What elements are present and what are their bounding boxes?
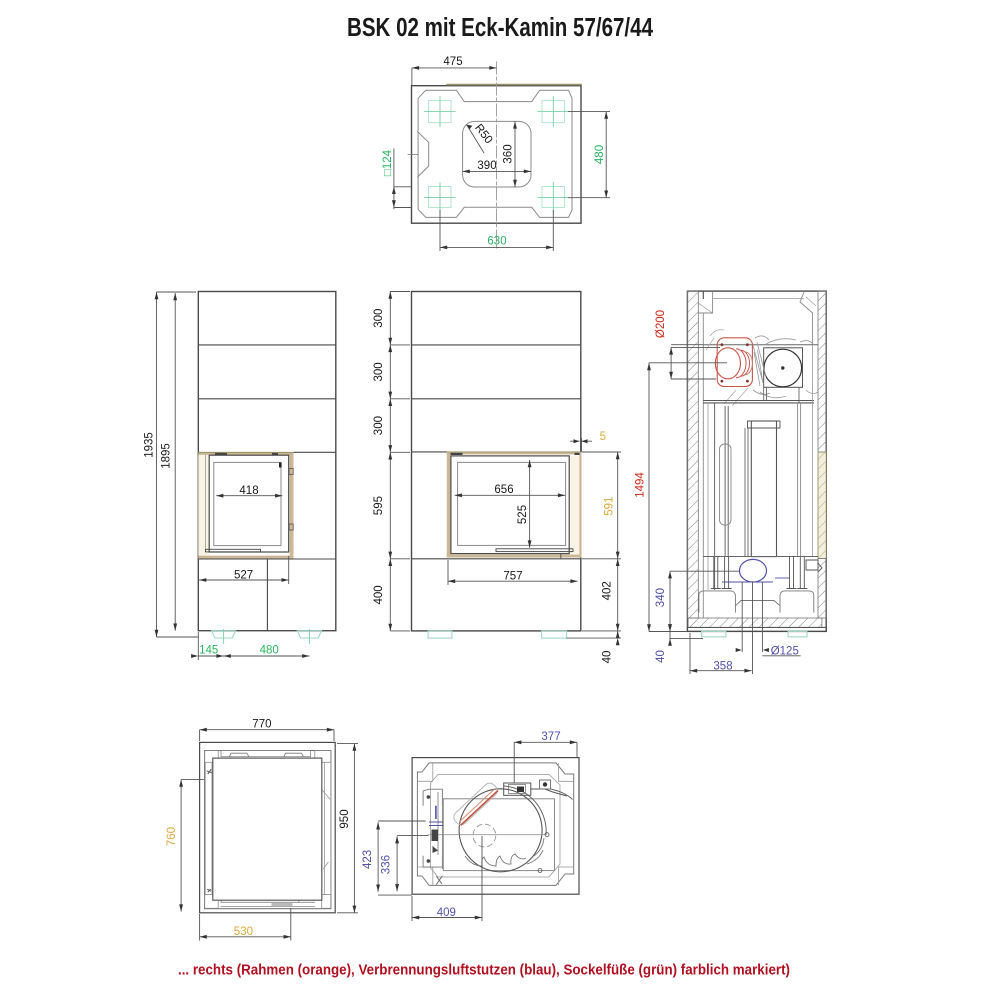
svg-text:527: 527 — [234, 570, 253, 582]
svg-text:R50: R50 — [472, 122, 494, 146]
svg-text:336: 336 — [381, 855, 393, 874]
svg-text:475: 475 — [443, 56, 462, 68]
svg-text:340: 340 — [655, 588, 667, 607]
svg-text:770: 770 — [252, 719, 271, 731]
svg-text:1935: 1935 — [144, 432, 156, 458]
svg-text:358: 358 — [713, 660, 732, 672]
svg-text:591: 591 — [603, 497, 615, 516]
svg-text:1494: 1494 — [635, 472, 647, 498]
svg-text:... rechts (Rahmen (orange), V: ... rechts (Rahmen (orange), Verbrennung… — [178, 962, 790, 979]
svg-text:5: 5 — [600, 431, 606, 443]
svg-text:40: 40 — [655, 650, 667, 663]
svg-text:409: 409 — [437, 907, 456, 919]
svg-text:300: 300 — [373, 309, 385, 328]
svg-text:400: 400 — [373, 585, 385, 604]
svg-text:□124: □124 — [382, 149, 394, 176]
svg-text:390: 390 — [477, 160, 496, 172]
svg-text:418: 418 — [239, 485, 258, 497]
svg-text:760: 760 — [166, 827, 178, 846]
svg-text:300: 300 — [373, 362, 385, 381]
svg-text:377: 377 — [541, 731, 560, 743]
svg-text:1895: 1895 — [161, 443, 173, 469]
svg-text:757: 757 — [503, 570, 522, 582]
svg-text:656: 656 — [494, 484, 513, 496]
svg-text:480: 480 — [260, 644, 279, 656]
svg-text:360: 360 — [503, 144, 515, 163]
svg-text:630: 630 — [487, 235, 506, 247]
svg-text:423: 423 — [362, 850, 374, 869]
svg-text:402: 402 — [602, 581, 614, 600]
svg-text:480: 480 — [594, 145, 606, 164]
svg-text:950: 950 — [339, 809, 351, 828]
svg-text:40: 40 — [602, 651, 614, 664]
svg-text:BSK 02 mit Eck-Kamin 57/67/44: BSK 02 mit Eck-Kamin 57/67/44 — [347, 14, 654, 42]
svg-text:Ø125: Ø125 — [771, 646, 799, 658]
svg-text:145: 145 — [199, 644, 218, 656]
svg-text:595: 595 — [373, 496, 385, 515]
svg-text:530: 530 — [234, 926, 253, 938]
svg-text:300: 300 — [373, 416, 385, 435]
svg-text:Ø200: Ø200 — [655, 310, 667, 338]
svg-text:525: 525 — [517, 505, 529, 524]
